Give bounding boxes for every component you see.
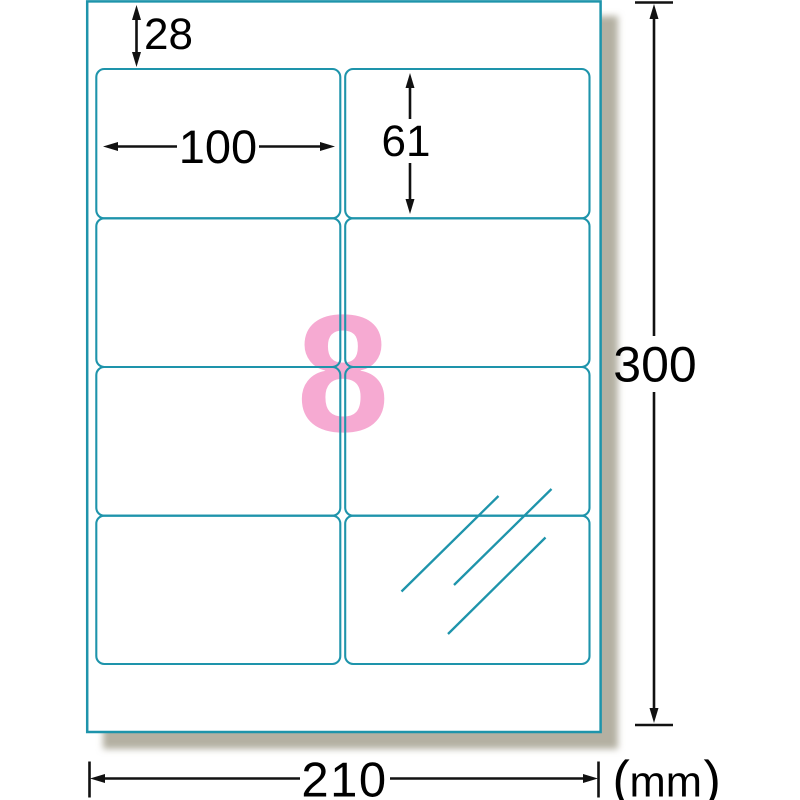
svg-text:8: 8 xyxy=(297,281,390,467)
svg-text:mm: mm xyxy=(630,759,702,800)
svg-text:28: 28 xyxy=(144,10,193,59)
svg-text:300: 300 xyxy=(613,337,696,393)
svg-text:): ) xyxy=(704,751,721,800)
svg-text:210: 210 xyxy=(301,754,387,800)
svg-text:(: ( xyxy=(613,751,631,800)
svg-text:100: 100 xyxy=(179,120,257,173)
svg-text:61: 61 xyxy=(382,117,431,166)
